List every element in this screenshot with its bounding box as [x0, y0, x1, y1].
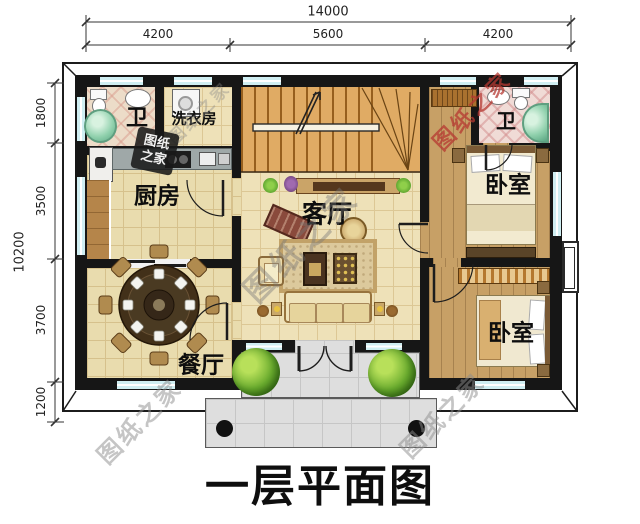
end-table-left — [271, 302, 282, 316]
watermark-stamp: 图纸 之家 — [130, 126, 180, 176]
headboard — [467, 146, 535, 153]
window-top-3 — [243, 77, 281, 85]
headboard — [545, 296, 550, 366]
kitchen-cabinet-left — [87, 180, 111, 259]
bush-left — [232, 348, 280, 396]
purple-plant — [284, 176, 298, 192]
entry-door-opening — [295, 340, 355, 353]
sliding-door-panel — [123, 260, 155, 263]
nightstand — [537, 364, 550, 377]
pillow — [502, 154, 532, 173]
window-left-kitchen — [77, 177, 85, 255]
dim-width-seg-2: 5600 — [313, 27, 344, 41]
window-right-bedroom — [553, 172, 561, 236]
nightstand — [537, 281, 550, 294]
bush-right — [368, 349, 416, 397]
bay-window — [562, 241, 579, 293]
staircase-winder — [378, 87, 420, 172]
kitchen-door-opening — [232, 178, 241, 216]
room-label-bedroom-bottom: 卧室 — [488, 323, 534, 346]
sliding-door-panel — [154, 264, 186, 267]
sofa — [284, 291, 372, 323]
dim-width-total: 14000 — [307, 5, 348, 20]
window-top-5 — [524, 77, 558, 85]
dim-height-seg-1: 1800 — [34, 98, 48, 129]
dim-height-seg-2: 3500 — [34, 186, 48, 217]
room-label-bathroom-top-right: 卫 — [496, 111, 516, 131]
counter-module — [218, 153, 230, 165]
window-top-2 — [174, 77, 212, 85]
pillow — [470, 154, 500, 173]
dining-door-opening — [232, 302, 241, 340]
window-top-1 — [100, 77, 143, 85]
plant-right — [396, 178, 411, 193]
dim-width-seg-3: 4200 — [483, 27, 514, 41]
hall-door-opening — [420, 222, 429, 258]
window-top-4 — [440, 77, 476, 85]
bay-window-inner — [564, 247, 575, 289]
sofa-cushion — [316, 303, 343, 323]
window-left-bath — [77, 97, 85, 141]
sofa-cushion — [343, 303, 370, 323]
flower-box — [333, 253, 357, 284]
nightstand — [536, 148, 549, 163]
porch-column-left — [216, 420, 233, 437]
room-label-kitchen: 厨房 — [134, 186, 180, 209]
coffee-table-tray — [309, 263, 321, 276]
dim-height-seg-3: 3700 — [34, 305, 48, 336]
page-title: 一层平面图 — [205, 465, 435, 509]
sliding-door — [120, 259, 190, 268]
floor-plan: 14000 4200 5600 4200 10200 1800 3500 370… — [0, 0, 640, 524]
kitchen-desk — [89, 147, 113, 182]
end-table-right — [374, 302, 385, 316]
room-label-dining: 餐厅 — [178, 355, 224, 378]
room-label-bedroom-top: 卧室 — [485, 175, 531, 198]
blanket — [467, 204, 535, 231]
floor-plant — [386, 305, 398, 317]
plant-left — [263, 178, 278, 193]
lamp — [377, 306, 383, 312]
lamp — [274, 306, 280, 312]
dim-width-seg-1: 4200 — [143, 27, 174, 41]
toilet-bowl — [514, 96, 528, 110]
bedroom-dresser — [466, 247, 536, 258]
dim-height-seg-4: 1200 — [34, 387, 48, 418]
burner — [179, 155, 188, 164]
dim-height-total: 10200 — [13, 231, 28, 272]
bedroom2-door-opening — [433, 258, 461, 267]
sofa-cushion — [289, 303, 316, 323]
bathtub — [84, 109, 117, 143]
nightstand — [452, 148, 465, 163]
kitchen-sink — [199, 152, 216, 166]
kitchen-chair — [95, 157, 106, 168]
